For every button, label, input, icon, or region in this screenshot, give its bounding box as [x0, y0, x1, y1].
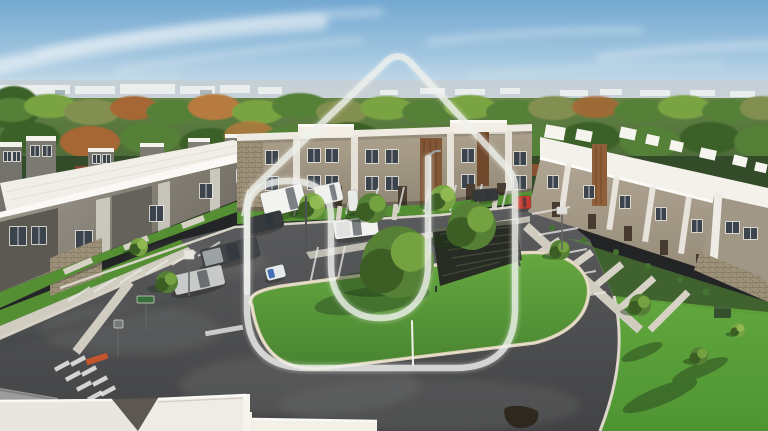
warm-light-overlay	[0, 0, 768, 431]
aerial-photo: Aerial drone photo of a new two-story to…	[0, 0, 768, 431]
aerial-photo-canvas	[0, 0, 768, 431]
